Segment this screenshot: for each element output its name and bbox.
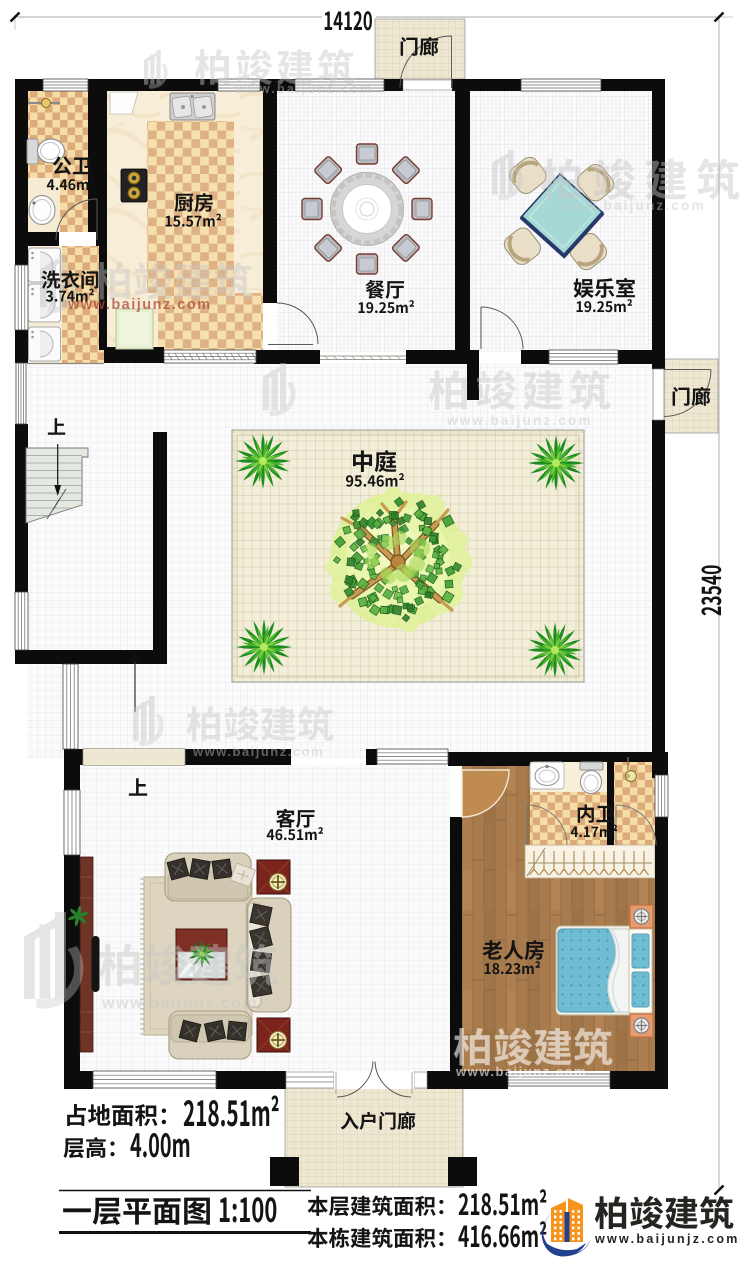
svg-text:www.baijunz.com: www.baijunz.com (101, 995, 258, 1012)
svg-text:www.baijunz.com: www.baijunz.com (235, 82, 373, 96)
svg-text:www.baijunz.com: www.baijunz.com (67, 297, 212, 313)
svg-text:www.baijunz.com: www.baijunz.com (192, 744, 324, 759)
svg-text:www.baijunz.com: www.baijunz.com (446, 413, 593, 428)
svg-text:www.baijunz.com: www.baijunz.com (559, 198, 706, 213)
svg-text:www.baijunjz.com: www.baijunjz.com (594, 1232, 740, 1246)
svg-text:www.baijunz.com: www.baijunz.com (455, 1064, 587, 1079)
